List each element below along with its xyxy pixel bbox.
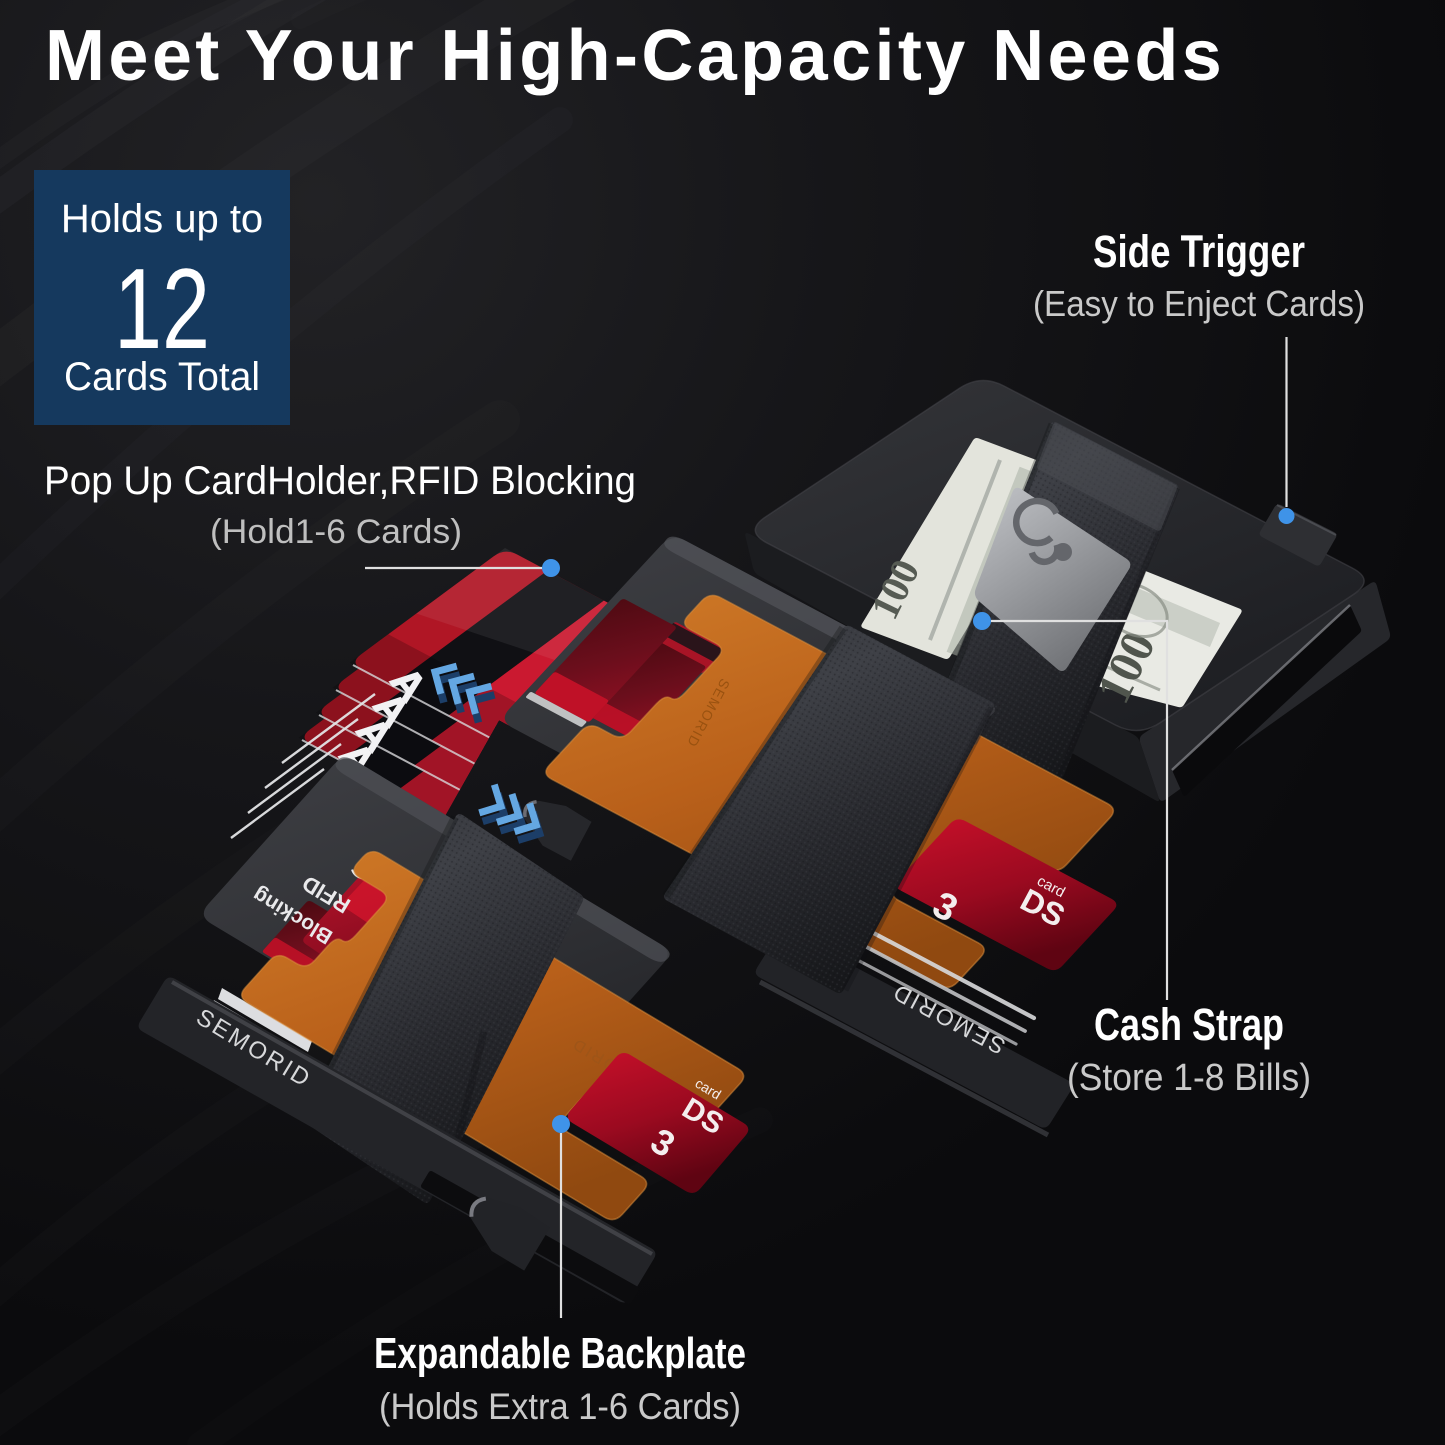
svg-text:(Holds Extra 1-6 Cards): (Holds Extra 1-6 Cards) [379, 1386, 741, 1427]
svg-text:Pop Up CardHolder,RFID Blockin: Pop Up CardHolder,RFID Blocking [44, 459, 636, 503]
svg-text:12: 12 [114, 246, 210, 373]
svg-text:(Hold1-6 Cards): (Hold1-6 Cards) [210, 513, 462, 551]
svg-text:Side Trigger: Side Trigger [1093, 226, 1305, 277]
svg-text:Cards Total: Cards Total [64, 355, 260, 399]
svg-text:Meet Your High-Capacity Needs: Meet Your High-Capacity Needs [45, 16, 1225, 96]
svg-text:Expandable Backplate: Expandable Backplate [374, 1329, 746, 1378]
svg-text:(Easy to Enject Cards): (Easy to Enject Cards) [1033, 283, 1365, 324]
svg-text:Holds up to: Holds up to [61, 197, 263, 241]
svg-text:(Store 1-8 Bills): (Store 1-8 Bills) [1067, 1057, 1311, 1099]
svg-text:Cash Strap: Cash Strap [1094, 999, 1284, 1050]
